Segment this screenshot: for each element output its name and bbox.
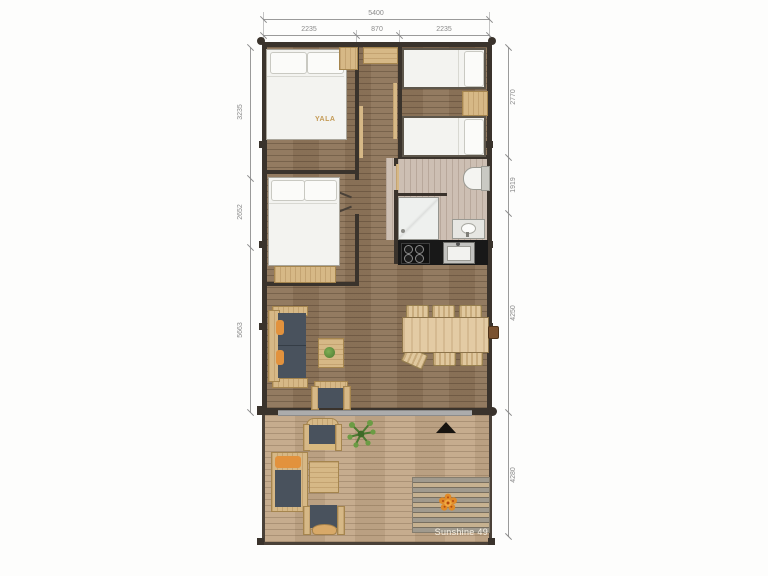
- burner-icon: [404, 254, 413, 263]
- wall-post: [259, 141, 266, 148]
- armchair-arm: [343, 386, 351, 410]
- sliding-door-track: [278, 410, 472, 416]
- brand-label: YALA: [315, 116, 335, 123]
- faucet-icon: [466, 232, 469, 237]
- bed-bench: [274, 266, 336, 283]
- wall-stub: [355, 172, 359, 180]
- hall-wardrobe: [363, 47, 398, 64]
- wall-master-bedroom2: [262, 170, 358, 174]
- deck-chair2-arm: [337, 506, 345, 535]
- dining-chair: [460, 351, 483, 366]
- master-bed-pillow: [270, 52, 307, 74]
- sink-basin: [447, 246, 471, 261]
- dim-left-seg2-label: 2652: [237, 197, 245, 227]
- deck-plant-icon: [345, 417, 377, 449]
- cushion-seam: [278, 345, 306, 346]
- entrance-arrow-icon: [436, 422, 456, 433]
- deck-side-table: [309, 461, 339, 493]
- deck-chair-arm: [335, 424, 342, 451]
- dim-top-seg3-label: 2235: [414, 26, 474, 34]
- duvet-fold: [458, 50, 459, 87]
- burner-icon: [415, 254, 424, 263]
- dimension-line-right: [508, 47, 509, 537]
- duvet-fold: [458, 118, 459, 155]
- floor-plan-page: 5400 2235 870 2235 3235 2652 5663 2770 1…: [0, 0, 768, 576]
- lounger-cushion: [275, 470, 301, 507]
- shower: [398, 197, 439, 240]
- dim-top-total-label: 5400: [336, 10, 416, 18]
- toilet-tank: [481, 166, 490, 191]
- plan-name-label: Sunshine 49: [400, 527, 488, 537]
- deck-post: [257, 538, 264, 545]
- sliding-door-panel: [359, 106, 363, 158]
- burner-icon: [404, 245, 413, 254]
- dining-table: [402, 317, 489, 353]
- dim-left-seg3-label: 5663: [237, 315, 245, 345]
- dining-chair: [433, 351, 456, 366]
- wall-bedroom2-hall: [355, 214, 359, 286]
- second-bed-pillow: [304, 180, 337, 201]
- lounger-pillow-orange: [275, 456, 301, 468]
- faucet-icon: [456, 242, 460, 246]
- dimension-line-top-total: [263, 19, 490, 20]
- door-handle-icon: [488, 326, 499, 339]
- sliding-door-panel: [393, 83, 397, 139]
- twin-bed-pillow: [464, 119, 484, 155]
- sofa-pillow-orange: [276, 320, 284, 335]
- dimension-line-top-segments: [263, 35, 490, 36]
- dim-right-seg3-label: 4250: [510, 298, 518, 328]
- deck-post: [488, 538, 495, 545]
- dim-top-seg2-label: 870: [347, 26, 407, 34]
- deck-chair2-pillow: [312, 524, 337, 535]
- deck-chair-seat: [309, 444, 335, 450]
- armchair-cushion: [318, 388, 343, 408]
- dim-right-seg1-label: 2770: [510, 82, 518, 112]
- dimension-line-left: [250, 47, 251, 413]
- dim-right-seg2-label: 1919: [510, 170, 518, 200]
- fire-icon: [438, 493, 458, 513]
- wall-post: [488, 407, 497, 416]
- dim-left-seg1-label: 3235: [237, 97, 245, 127]
- wall-post: [257, 406, 265, 415]
- wardrobe: [339, 47, 358, 70]
- duvet-fold: [267, 76, 344, 77]
- corner-post: [488, 37, 496, 45]
- dim-right-seg4-label: 4280: [510, 460, 518, 490]
- wall-post: [259, 323, 266, 330]
- sofa-pillow-orange: [276, 350, 284, 365]
- twin-bed-pillow: [464, 51, 484, 87]
- wall-post: [486, 141, 493, 148]
- twin-shelf: [462, 91, 488, 116]
- plant-icon: [324, 347, 335, 358]
- wall-post: [259, 241, 266, 248]
- duvet-fold: [269, 203, 337, 204]
- bathroom-door-panel: [396, 164, 399, 190]
- dim-top-seg1-label: 2235: [279, 26, 339, 34]
- second-bed-pillow: [271, 180, 305, 201]
- shower-drain: [401, 229, 405, 233]
- deck-chair-cushion: [309, 425, 335, 445]
- burner-icon: [415, 245, 424, 254]
- wall-shower: [395, 193, 447, 196]
- corner-post: [257, 37, 265, 45]
